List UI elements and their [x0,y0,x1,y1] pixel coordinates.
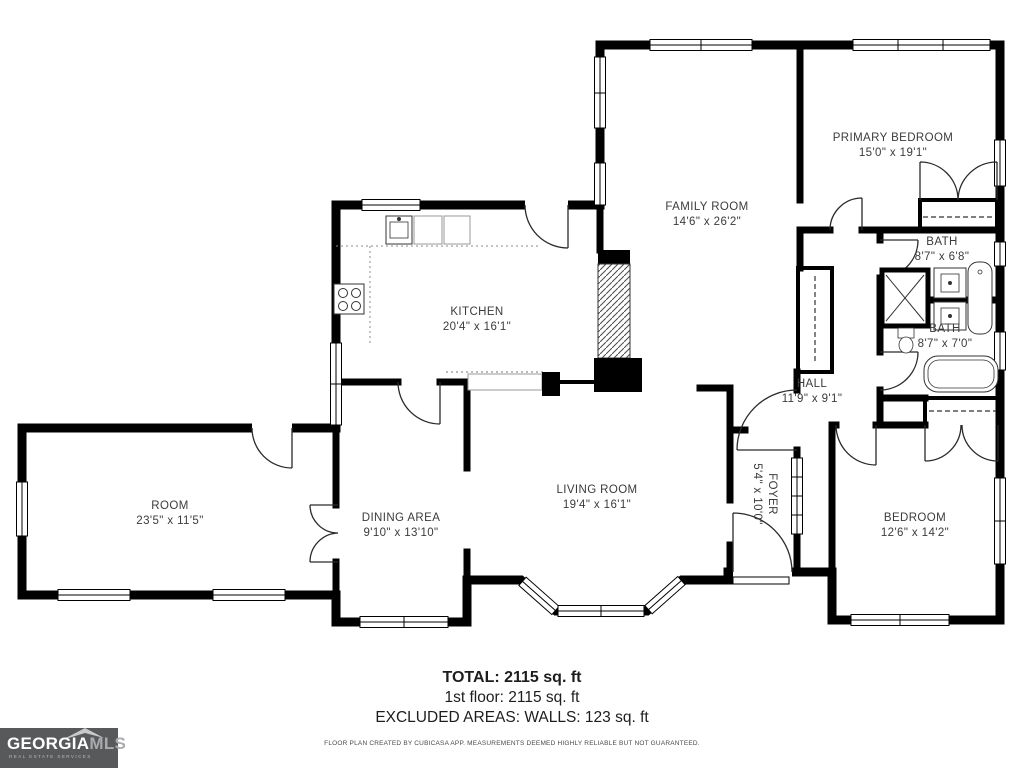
logo-mls: MLS [89,734,126,753]
logo-tagline: REAL ESTATE SERVICES [9,754,92,759]
room-label-family-room: FAMILY ROOM14'6" x 26'2" [665,200,748,230]
room-label-living-room: LIVING ROOM19'4" x 16'1" [556,483,637,513]
total-area: TOTAL: 2115 sq. ft [0,669,1024,687]
toilet-icon [898,328,914,353]
room-label-dining-area: DINING AREA9'10" x 13'10" [362,511,441,541]
first-floor-area: 1st floor: 2115 sq. ft [0,689,1024,707]
shower-icon [882,270,928,326]
floor-plan-page: FAMILY ROOM14'6" x 26'2" PRIMARY BEDROOM… [0,0,1024,768]
room-label-bath-lower: BATH8'7" x 7'0" [918,322,973,352]
room-label-bath-upper: BATH8'7" x 6'8" [915,235,970,265]
room-label-kitchen: KITCHEN20'4" x 16'1" [443,305,511,335]
room-label-room: ROOM23'5" x 11'5" [136,499,203,529]
area-summary: TOTAL: 2115 sq. ft 1st floor: 2115 sq. f… [0,669,1024,747]
room-label-bedroom: BEDROOM12'6" x 14'2" [881,511,949,541]
room-label-foyer: FOYER5'4" x 10'0" [749,463,779,524]
room-label-primary-bedroom: PRIMARY BEDROOM15'0" x 19'1" [833,131,954,161]
floor-plan-drawing [0,0,1024,768]
front-door-step [733,577,789,584]
logo-georgia: GEORGIA [7,734,89,753]
room-label-hall: HALL11'9" x 9'1" [782,377,843,407]
disclaimer: FLOOR PLAN CREATED BY CUBICASA APP. MEAS… [0,740,1024,747]
excluded-area: EXCLUDED AREAS: WALLS: 123 sq. ft [0,709,1024,727]
stove-icon [334,284,364,314]
georgia-mls-logo: GEORGIAMLS REAL ESTATE SERVICES [0,728,118,768]
bath-sink-upper [934,268,966,298]
bathtub-lower-icon [924,356,998,392]
